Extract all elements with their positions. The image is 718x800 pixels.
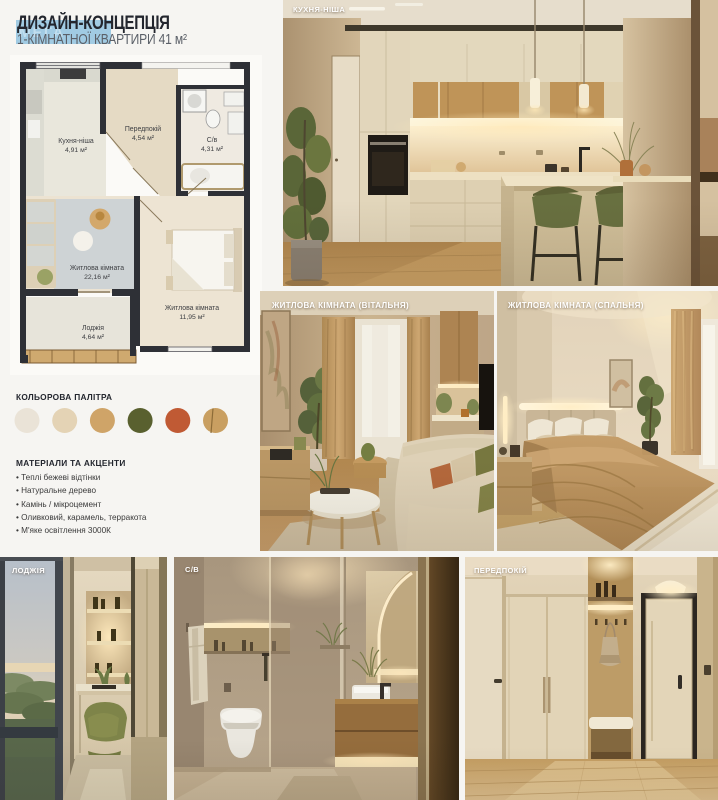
svg-text:Передпокій: Передпокій [125,125,161,133]
svg-text:Житлова кімната: Житлова кімната [165,304,219,312]
svg-text:11,95 м²: 11,95 м² [179,314,205,321]
svg-text:22,16 м²: 22,16 м² [84,274,111,281]
svg-text:4,64 м²: 4,64 м² [82,334,105,341]
svg-text:4,91 м²: 4,91 м² [65,147,88,154]
svg-text:Житлова кімната: Житлова кімната [70,264,124,272]
svg-text:С/в: С/в [207,137,218,144]
svg-text:4,31 м²: 4,31 м² [201,146,224,153]
svg-text:Кухня-ніша: Кухня-ніша [58,137,94,145]
svg-text:Лоджія: Лоджія [82,324,104,332]
svg-text:4,54 м²: 4,54 м² [132,135,155,142]
